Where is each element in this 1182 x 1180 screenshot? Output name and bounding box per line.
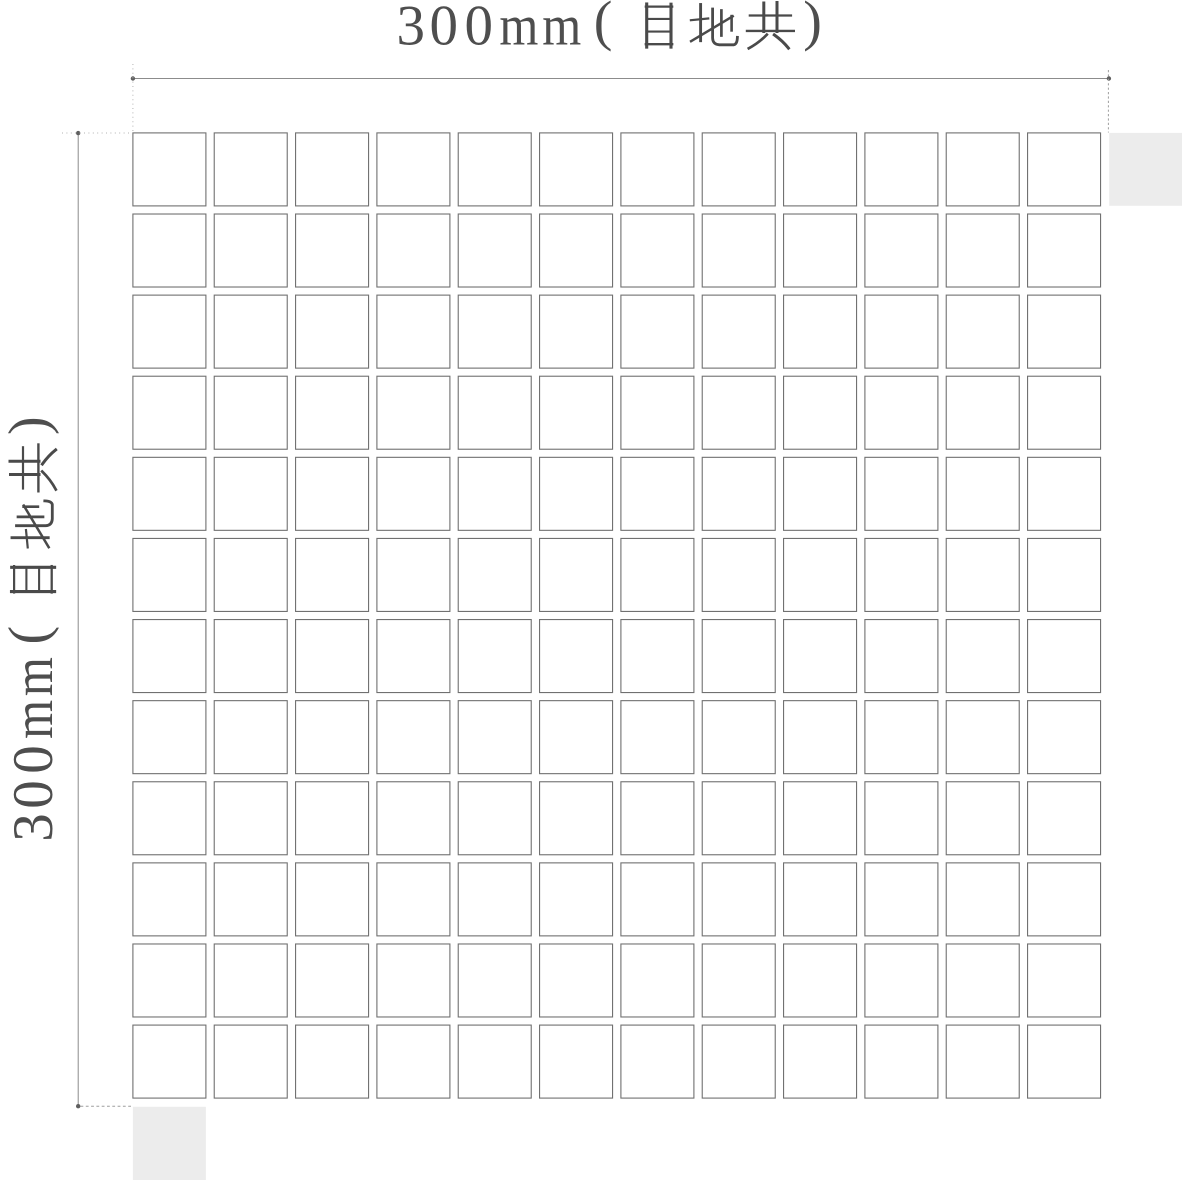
svg-text:m: m <box>2 657 65 696</box>
svg-text:0: 0 <box>430 0 459 58</box>
svg-text:(: ( <box>594 0 613 53</box>
svg-text:(: ( <box>0 626 60 645</box>
svg-text:m: m <box>499 0 538 58</box>
svg-text:0: 0 <box>2 780 65 809</box>
svg-text:0: 0 <box>2 745 65 774</box>
svg-text:m: m <box>542 0 581 58</box>
svg-text:3: 3 <box>2 813 65 842</box>
svg-text:3: 3 <box>397 0 426 58</box>
svg-text:m: m <box>2 700 65 739</box>
svg-text:): ) <box>803 0 822 53</box>
svg-text:): ) <box>0 416 60 435</box>
svg-text:0: 0 <box>465 0 494 58</box>
